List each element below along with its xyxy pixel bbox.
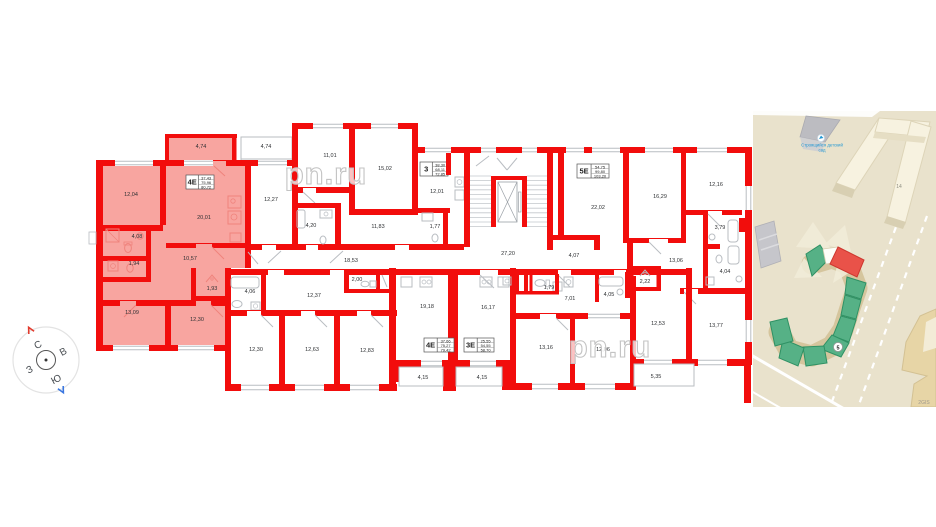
- svg-text:16,29: 16,29: [653, 194, 667, 200]
- svg-text:2,00: 2,00: [352, 277, 363, 283]
- svg-text:19,18: 19,18: [420, 304, 434, 310]
- svg-text:18,53: 18,53: [344, 258, 358, 264]
- svg-text:12,83: 12,83: [360, 348, 374, 354]
- svg-text:14: 14: [896, 184, 902, 190]
- svg-text:3Е: 3Е: [466, 341, 475, 350]
- svg-text:4,74: 4,74: [261, 144, 272, 150]
- svg-text:12,01: 12,01: [430, 189, 444, 195]
- svg-text:12,27: 12,27: [264, 197, 278, 203]
- svg-text:1,94: 1,94: [129, 261, 140, 267]
- svg-text:3,79: 3,79: [715, 225, 726, 231]
- svg-text:16,17: 16,17: [481, 305, 495, 311]
- svg-text:58,70: 58,70: [481, 348, 492, 353]
- svg-text:12,30: 12,30: [249, 347, 263, 353]
- svg-text:сад: сад: [818, 148, 826, 153]
- svg-text:13,06: 13,06: [669, 258, 683, 264]
- svg-text:1,77: 1,77: [430, 224, 441, 230]
- svg-text:12,16: 12,16: [709, 182, 723, 188]
- svg-text:12,63: 12,63: [305, 347, 319, 353]
- svg-text:5: 5: [836, 346, 839, 352]
- svg-text:79,42: 79,42: [441, 348, 452, 353]
- svg-text:4,15: 4,15: [477, 375, 488, 381]
- svg-text:pn.ru: pn.ru: [285, 156, 368, 191]
- svg-text:10,57: 10,57: [183, 256, 197, 262]
- svg-text:12,37: 12,37: [307, 293, 321, 299]
- svg-text:4,04: 4,04: [720, 269, 731, 275]
- svg-text:4,07: 4,07: [569, 253, 580, 259]
- svg-text:4Е: 4Е: [188, 178, 197, 187]
- svg-text:4,15: 4,15: [418, 375, 429, 381]
- svg-text:3: 3: [424, 165, 428, 174]
- svg-text:22,02: 22,02: [591, 205, 605, 211]
- svg-text:5Е: 5Е: [579, 167, 588, 176]
- svg-text:80,72: 80,72: [201, 185, 212, 190]
- svg-text:27,20: 27,20: [501, 251, 515, 257]
- svg-text:2,22: 2,22: [640, 279, 651, 285]
- svg-text:7,01: 7,01: [565, 296, 576, 302]
- svg-text:4Е: 4Е: [426, 341, 435, 350]
- svg-text:1,79: 1,79: [544, 285, 555, 291]
- svg-text:4,05: 4,05: [604, 292, 615, 298]
- svg-text:20,01: 20,01: [197, 215, 211, 221]
- svg-text:72,85: 72,85: [435, 172, 446, 177]
- svg-text:103,20: 103,20: [594, 174, 607, 179]
- svg-text:13,77: 13,77: [709, 323, 723, 329]
- svg-text:15,02: 15,02: [378, 166, 392, 172]
- svg-text:1,93: 1,93: [207, 286, 218, 292]
- svg-text:13,16: 13,16: [539, 345, 553, 351]
- svg-text:4,06: 4,06: [245, 289, 256, 295]
- svg-text:12,53: 12,53: [651, 321, 665, 327]
- svg-text:13,09: 13,09: [125, 310, 139, 316]
- svg-text:4,74: 4,74: [196, 144, 207, 150]
- svg-text:4,08: 4,08: [132, 234, 143, 240]
- svg-text:4,20: 4,20: [306, 223, 317, 229]
- svg-text:pn.ru: pn.ru: [569, 329, 652, 364]
- svg-text:5,35: 5,35: [651, 374, 662, 380]
- svg-text:11,83: 11,83: [371, 224, 384, 230]
- svg-text:2GIS: 2GIS: [918, 400, 930, 406]
- svg-text:12,30: 12,30: [190, 317, 204, 323]
- svg-text:12,04: 12,04: [124, 192, 138, 198]
